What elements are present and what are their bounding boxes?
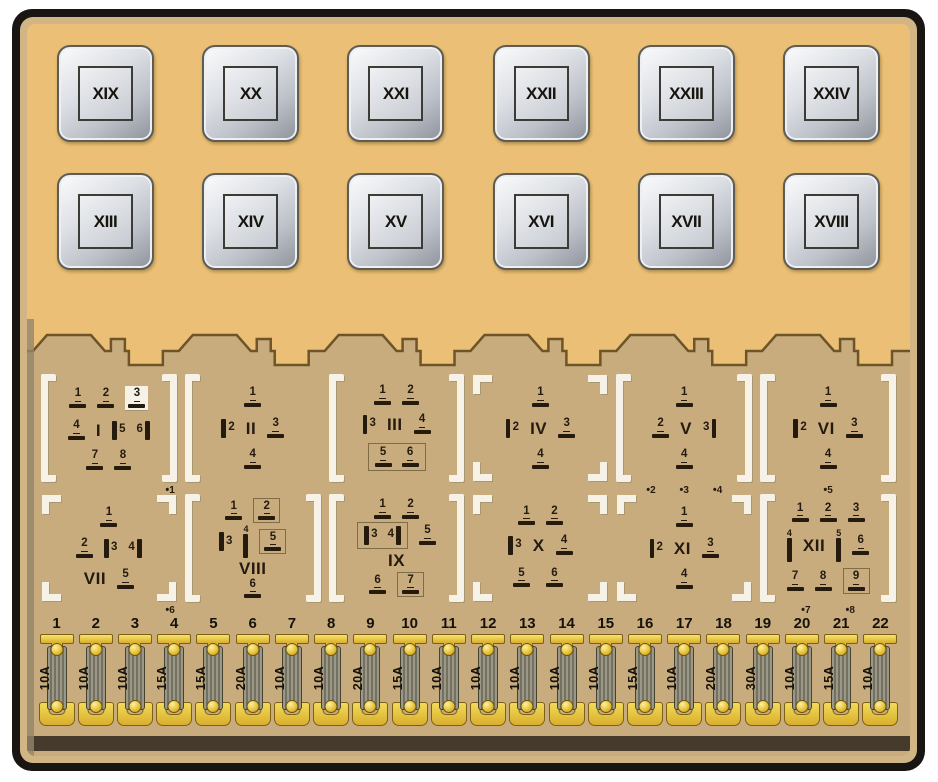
relay-row-top: XIXXXXXIXXIIXXIIIXXIV <box>27 24 910 142</box>
fuse-body: 10A <box>870 646 890 710</box>
bracket-right <box>306 494 321 602</box>
pin-7: 7 <box>787 571 804 591</box>
fuse-amp-label: 10A <box>469 666 483 690</box>
fuse-amp-label: 15A <box>391 666 405 690</box>
pin-2: 2 <box>506 419 519 438</box>
fuse-22: 2210A <box>861 616 900 726</box>
pin-2: 2 <box>76 538 93 558</box>
fuse-number: 12 <box>480 616 497 632</box>
bracket-corner <box>42 582 61 601</box>
fuse-21: 2115A <box>822 616 861 726</box>
bracket-left <box>41 374 56 482</box>
pin-row: 2II3 <box>221 418 284 438</box>
pin-3: 3 <box>846 418 863 438</box>
bracket-left <box>329 494 344 602</box>
pin-2: 2 <box>402 385 419 405</box>
connector-label: VIII <box>239 560 267 577</box>
fuse-3: 310A <box>115 616 154 726</box>
pin-row: 78 <box>86 450 131 470</box>
fuse-amp-label: 10A <box>77 666 91 690</box>
fuse-body: 10A <box>478 646 498 710</box>
fuse-body: 20A <box>713 646 733 710</box>
connector-group-XII: 1234XII56789•7•8 <box>758 492 898 604</box>
fuse-body: 10A <box>674 646 694 710</box>
relay-label: XIX <box>78 66 133 121</box>
bracket-corner <box>473 462 492 481</box>
pin-3: 3 <box>104 539 117 558</box>
fuse-number: 17 <box>676 616 693 632</box>
fuse-amp-label: 20A <box>705 666 719 690</box>
fuse-box-diagram: XIXXXXXIXXIIXXIIIXXIV XIIIXIVXVXVIXVIIXV… <box>0 0 938 782</box>
fuse-amp-label: 15A <box>626 666 640 690</box>
fuse-amp-label: 10A <box>783 666 797 690</box>
pin-row: 4 <box>820 449 837 469</box>
pin-2: 2 <box>652 418 669 438</box>
pin-row: 4 <box>676 449 693 469</box>
pin-7: 7 <box>397 572 424 598</box>
pin-4: 4 <box>414 414 431 434</box>
pin-7: 7 <box>86 450 103 470</box>
pin-3: 3 <box>125 386 148 410</box>
fuse-number: 4 <box>170 616 178 632</box>
bracket-left <box>760 494 775 602</box>
connector-label: IX <box>388 552 405 569</box>
connector-group-XI: 12XI34 <box>614 492 754 604</box>
pin-row: 234 <box>76 538 142 558</box>
fuse-amp-label: 10A <box>312 666 326 690</box>
fuse-box-panel: XIXXXXXIXXIIXXIIIXXIV XIIIXIVXVXVIXVIIXV… <box>27 24 910 756</box>
index-dots: •1 <box>47 485 175 496</box>
fuse-number: 21 <box>833 616 850 632</box>
relay-label: XIII <box>78 194 133 249</box>
pin-row: 2VI3 <box>793 418 862 438</box>
connector-label: III <box>387 416 403 433</box>
pin-1: 1 <box>100 507 117 527</box>
pin-5: 5 <box>375 447 392 467</box>
bracket-corner <box>588 375 607 394</box>
fuse-2: 210A <box>76 616 115 726</box>
pin-row: 123 <box>792 503 865 523</box>
pin-6: 6 <box>137 421 150 440</box>
fuse-11: 1110A <box>429 616 468 726</box>
fuse-number: 18 <box>715 616 732 632</box>
pin-2: 2 <box>650 539 663 558</box>
pin-8: 8 <box>114 450 131 470</box>
fuse-number: 14 <box>558 616 575 632</box>
pin-group-box: 56 <box>368 443 426 471</box>
pin-1: 1 <box>518 506 535 526</box>
pin-row: 6 <box>244 579 261 599</box>
pin-4: 4 <box>243 525 248 558</box>
bracket-corner <box>473 375 492 394</box>
pin-row: 67 <box>369 572 424 598</box>
connector-label: XI <box>674 540 691 557</box>
fuse-8: 810A <box>312 616 351 726</box>
pin-row: 1 <box>820 387 837 407</box>
fuse-box-rim: XIXXXXXIXXIIXXIIIXXIV XIIIXIVXVXVIXVIIXV… <box>20 17 917 763</box>
pin-5: 5 <box>836 529 841 562</box>
pin-1: 1 <box>374 385 391 405</box>
fuse-amp-label: 15A <box>195 666 209 690</box>
fuse-body: 10A <box>282 646 302 710</box>
bracket-left <box>329 374 344 482</box>
bracket-right <box>449 494 464 602</box>
connector-group-X: 123X456 <box>470 492 610 604</box>
pin-1: 1 <box>225 501 242 521</box>
bracket-corner <box>42 495 61 514</box>
pin-row: 345 <box>219 525 286 558</box>
pin-4: 4 <box>388 526 401 545</box>
pin-row: 56 <box>368 443 426 471</box>
fuse-amp-label: 10A <box>509 666 523 690</box>
index-dots: •2•3•4 <box>622 485 746 496</box>
pin-row: VII5 <box>84 569 134 589</box>
pin-3: 3 <box>267 418 284 438</box>
pin-row: 56 <box>513 565 568 591</box>
pin-row: 345 <box>357 522 436 549</box>
connector-section: 1234I5678•112II34123III45612IV3412V34•2•… <box>27 372 910 604</box>
pin-1: 1 <box>676 507 693 527</box>
pin-row: 4 <box>676 569 693 589</box>
fuse-amp-label: 10A <box>862 666 876 690</box>
relay-XXI: XXI <box>347 45 444 142</box>
pin-row: 4I56 <box>68 420 150 440</box>
pin-3: 3 <box>702 538 719 558</box>
pin-1: 1 <box>69 388 86 408</box>
fuse-body: 10A <box>596 646 616 710</box>
bracket-right <box>881 374 896 482</box>
pin-6: 6 <box>244 579 261 599</box>
pin-row: 4 <box>244 449 261 469</box>
relay-XIV: XIV <box>202 173 299 270</box>
fuse-amp-label: 15A <box>822 666 836 690</box>
fuse-number: 2 <box>92 616 100 632</box>
fuse-body: 15A <box>831 646 851 710</box>
connector-group-II: 12II34 <box>183 372 323 484</box>
pin-row: 3X4 <box>508 535 572 555</box>
pin-row: 3III4 <box>363 414 431 434</box>
fuse-amp-label: 10A <box>38 666 52 690</box>
connector-group-VI: 12VI34•5 <box>758 372 898 484</box>
fuse-1: 110A <box>37 616 76 726</box>
pin-3: 3 <box>848 503 865 523</box>
fuse-14: 1410A <box>547 616 586 726</box>
fuse-17: 1710A <box>665 616 704 726</box>
pin-5: 5 <box>419 525 436 545</box>
pin-6: 6 <box>402 447 419 467</box>
relay-XVI: XVI <box>493 173 590 270</box>
fuse-body: 15A <box>164 646 184 710</box>
fuse-10: 1015A <box>390 616 429 726</box>
fuse-amp-label: 10A <box>116 666 130 690</box>
pin-5: 5 <box>112 421 125 440</box>
pin-row: 2XI3 <box>650 538 719 558</box>
pin-6: 6 <box>541 565 568 591</box>
dot-mark-3: •3 <box>680 485 689 496</box>
fuse-5: 515A <box>194 616 233 726</box>
pin-3: 3 <box>558 418 575 438</box>
relay-XV: XV <box>347 173 444 270</box>
pin-4: 4 <box>556 535 573 555</box>
bracket-right <box>737 374 752 482</box>
connector-group-I: 1234I5678•1 <box>39 372 179 484</box>
pin-4: 4 <box>532 449 549 469</box>
fuse-amp-label: 20A <box>234 666 248 690</box>
pin-row: 4 <box>532 449 549 469</box>
connector-group-V: 12V34•2•3•4 <box>614 372 754 484</box>
fuse-body: 15A <box>203 646 223 710</box>
pin-row: 4XII56 <box>787 529 869 562</box>
pin-6: 6 <box>369 575 386 595</box>
pin-4: 4 <box>787 529 792 562</box>
fuse-body: 20A <box>243 646 263 710</box>
fuse-number: 5 <box>209 616 217 632</box>
fuse-number: 11 <box>441 616 457 632</box>
fuse-number: 16 <box>637 616 654 632</box>
relay-XXIII: XXIII <box>638 45 735 142</box>
pin-2: 2 <box>546 506 563 526</box>
index-dots: •5 <box>766 485 890 496</box>
fuse-number: 13 <box>519 616 536 632</box>
pin-row: 1 <box>676 507 693 527</box>
pin-row: 1 <box>244 387 261 407</box>
fuse-18: 1820A <box>704 616 743 726</box>
fuse-number: 15 <box>597 616 614 632</box>
relay-XIX: XIX <box>57 45 154 142</box>
relay-row-bottom: XIIIXIVXVXVIXVIIXVIII <box>27 142 910 270</box>
pin-5: 5 <box>117 569 134 589</box>
pin-2: 2 <box>820 503 837 523</box>
bracket-corner <box>732 582 751 601</box>
index-dots: •6 <box>47 605 175 616</box>
fuse-number: 10 <box>401 616 418 632</box>
relay-label: XXI <box>368 66 423 121</box>
bracket-corner <box>588 495 607 514</box>
fuse-body: 30A <box>753 646 773 710</box>
relay-label: XVII <box>659 194 714 249</box>
pin-3: 3 <box>508 536 521 555</box>
pin-1: 1 <box>792 503 809 523</box>
relay-XXII: XXII <box>493 45 590 142</box>
pin-4: 4 <box>68 420 85 440</box>
pin-4: 4 <box>128 539 141 558</box>
fuse-13: 1310A <box>508 616 547 726</box>
pin-2: 2 <box>793 419 806 438</box>
fuse-body: 10A <box>125 646 145 710</box>
relay-XX: XX <box>202 45 299 142</box>
fuse-7: 710A <box>272 616 311 726</box>
pin-row: 12 <box>374 385 419 405</box>
relay-label: XXII <box>514 66 569 121</box>
fuse-12: 1210A <box>469 616 508 726</box>
relay-XXIV: XXIV <box>783 45 880 142</box>
fuse-strip: 110A210A310A415A515A620A710A810A920A1015… <box>27 616 910 726</box>
connector-group-VIII: 12345VIII6 <box>183 492 323 604</box>
connector-label: IV <box>530 420 547 437</box>
fuse-body: 10A <box>321 646 341 710</box>
bracket-left <box>185 374 200 482</box>
fuse-4: 415A <box>155 616 194 726</box>
connector-group-IX: 12345IX67 <box>327 492 467 604</box>
fuse-body: 10A <box>792 646 812 710</box>
pin-3: 3 <box>364 526 377 545</box>
connector-label: XII <box>803 537 825 554</box>
bracket-left <box>185 494 200 602</box>
fuse-amp-label: 10A <box>665 666 679 690</box>
connector-label: VII <box>84 570 106 587</box>
pin-row: 123 <box>69 386 148 410</box>
connector-label: V <box>680 420 692 437</box>
fuse-number: 3 <box>131 616 139 632</box>
relay-label: XIV <box>223 194 278 249</box>
fuse-body: 10A <box>557 646 577 710</box>
fuse-body: 15A <box>400 646 420 710</box>
pin-2: 2 <box>97 388 114 408</box>
fuse-15: 1510A <box>586 616 625 726</box>
bracket-corner <box>617 582 636 601</box>
pin-9: 9 <box>843 568 870 594</box>
pin-row: VIII <box>239 560 267 577</box>
pin-1: 1 <box>532 387 549 407</box>
connector-label: I <box>96 422 101 439</box>
left-edge-shade <box>27 319 34 756</box>
connector-group-III: 123III456 <box>327 372 467 484</box>
relay-section: XIXXXXXIXXIIXXIIIXXIV XIIIXIVXVXVIXVIIXV… <box>27 24 910 324</box>
pin-row: 12 <box>518 506 563 526</box>
pin-row: 1 <box>532 387 549 407</box>
dot-mark-1: •1 <box>165 485 174 496</box>
dot-mark-5: •5 <box>823 485 832 496</box>
bracket-corner <box>732 495 751 514</box>
relay-XVII: XVII <box>638 173 735 270</box>
pin-row: IX <box>388 552 405 569</box>
bottom-rail <box>27 736 910 751</box>
fuse-number: 9 <box>366 616 374 632</box>
fuse-amp-label: 20A <box>352 666 366 690</box>
pin-4: 4 <box>244 449 261 469</box>
pin-5: 5 <box>513 568 530 588</box>
fuse-body: 20A <box>360 646 380 710</box>
fuse-9: 920A <box>351 616 390 726</box>
panel-joint-edge <box>27 324 910 370</box>
pin-2: 2 <box>221 419 234 438</box>
connector-label: X <box>533 537 545 554</box>
pin-4: 4 <box>676 449 693 469</box>
dot-mark-2: •2 <box>646 485 655 496</box>
pin-8: 8 <box>815 571 832 591</box>
fuse-16: 1615A <box>626 616 665 726</box>
fuse-number: 22 <box>872 616 889 632</box>
connector-label: II <box>246 420 256 437</box>
fuse-body: 10A <box>86 646 106 710</box>
bracket-right <box>449 374 464 482</box>
fuse-body: 10A <box>517 646 537 710</box>
bracket-corner <box>157 582 176 601</box>
relay-label: XX <box>223 66 278 121</box>
fuse-amp-label: 15A <box>155 666 169 690</box>
relay-label: XXIV <box>804 66 859 121</box>
fuse-amp-label: 10A <box>587 666 601 690</box>
fuse-amp-label: 10A <box>273 666 287 690</box>
bracket-corner <box>588 462 607 481</box>
fuse-body: 10A <box>439 646 459 710</box>
fuse-19: 1930A <box>743 616 782 726</box>
fuse-amp-label: 10A <box>548 666 562 690</box>
fuse-amp-label: 10A <box>430 666 444 690</box>
fuse-number: 19 <box>754 616 771 632</box>
bracket-corner <box>617 495 636 514</box>
connector-group-VII: 1234VII5•6 <box>39 492 179 604</box>
bracket-right <box>162 374 177 482</box>
pin-5: 5 <box>259 529 286 555</box>
pin-row: 12 <box>225 498 280 524</box>
bracket-right <box>881 494 896 602</box>
pin-2: 2 <box>402 499 419 519</box>
fuse-number: 7 <box>288 616 296 632</box>
fuse-box-outer-border: XIXXXXXIXXIIXXIIIXXIV XIIIXIVXVXVIXVIIXV… <box>12 9 925 771</box>
connector-label: VI <box>818 420 835 437</box>
pin-3: 3 <box>703 419 716 438</box>
fuse-body: 15A <box>635 646 655 710</box>
pin-1: 1 <box>374 499 391 519</box>
connector-group-IV: 12IV34 <box>470 372 610 484</box>
fuse-number: 1 <box>52 616 60 632</box>
pin-1: 1 <box>820 387 837 407</box>
pin-row: 12 <box>374 499 419 519</box>
pin-group-box: 34 <box>357 522 408 549</box>
relay-XIII: XIII <box>57 173 154 270</box>
bracket-left <box>760 374 775 482</box>
pin-row: 2IV3 <box>506 418 575 438</box>
pin-3: 3 <box>219 532 232 551</box>
pin-row: 1 <box>676 387 693 407</box>
pin-2: 2 <box>253 498 280 524</box>
pin-1: 1 <box>244 387 261 407</box>
dot-mark-4: •4 <box>713 485 722 496</box>
pin-row: 2V3 <box>652 418 716 438</box>
bracket-corner <box>473 582 492 601</box>
fuse-amp-label: 30A <box>744 666 758 690</box>
relay-label: XVI <box>514 194 569 249</box>
pin-row: 789 <box>787 568 870 594</box>
pin-4: 4 <box>820 449 837 469</box>
fuse-number: 8 <box>327 616 335 632</box>
relay-label: XV <box>368 194 423 249</box>
pin-row: 1 <box>100 507 117 527</box>
fuse-number: 6 <box>249 616 257 632</box>
bracket-left <box>616 374 631 482</box>
pin-3: 3 <box>363 415 376 434</box>
relay-label: XVIII <box>804 194 859 249</box>
fuse-number: 20 <box>794 616 811 632</box>
fuse-6: 620A <box>233 616 272 726</box>
bracket-corner <box>157 495 176 514</box>
relay-label: XXIII <box>659 66 714 121</box>
fuse-body: 10A <box>47 646 67 710</box>
fuse-20: 2010A <box>782 616 821 726</box>
pin-1: 1 <box>676 387 693 407</box>
bracket-corner <box>473 495 492 514</box>
relay-XVIII: XVIII <box>783 173 880 270</box>
bracket-corner <box>588 582 607 601</box>
pin-6: 6 <box>852 535 869 555</box>
pin-4: 4 <box>676 569 693 589</box>
